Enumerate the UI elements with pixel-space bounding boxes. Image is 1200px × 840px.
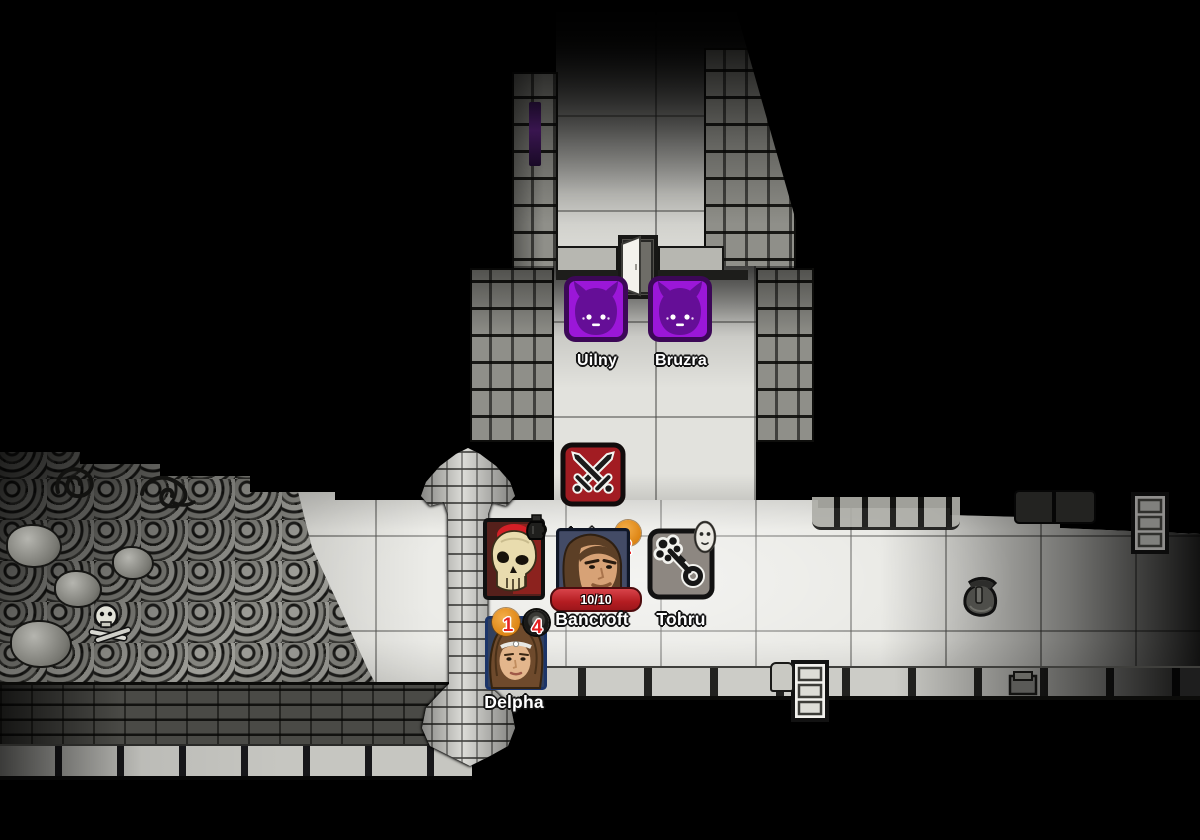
wall-base-tiles [0,744,472,780]
boulder [112,546,154,580]
shelf-icon[interactable] [791,660,829,722]
skull-and-bones-icon [84,602,142,644]
badge-count: 4 [529,618,545,637]
iron-coil-icon [138,472,198,514]
demon-uilny[interactable] [564,276,628,342]
crate-icon[interactable] [1008,670,1038,696]
wall-edge-stones[interactable] [812,497,960,530]
satchel-icon[interactable] [956,574,1002,620]
dark-item-icon [524,513,548,543]
demon-bruzra[interactable] [648,276,712,342]
creature-label-delpha: Delpha [484,692,544,713]
game-viewport: Uilny Bruzra Irulan 2 10/10 Bancroft [0,0,1200,840]
purple-glow [529,102,541,166]
shelf-icon[interactable] [1131,492,1169,554]
badge-count: 1 [500,616,516,635]
stone-wall[interactable] [756,268,814,442]
white-mask-icon [693,519,717,557]
creature-label-uilny: Uilny [577,352,617,370]
creature-label-bruzra: Bruzra [655,352,707,370]
boulder [6,524,62,568]
creature-label-bancroft: Bancroft [555,609,629,630]
small-stone [770,662,794,692]
creature-label-tohru: Tohru [656,609,705,630]
stone-wall[interactable] [470,268,554,442]
iron-coil-icon [52,462,106,508]
crossed-swords-icon[interactable] [560,442,626,507]
hp-value: 10/10 [580,593,611,607]
boulder [10,620,72,668]
brick-wall[interactable] [0,682,468,751]
dark-stones [1014,490,1096,524]
floor-ledge [520,666,1200,700]
